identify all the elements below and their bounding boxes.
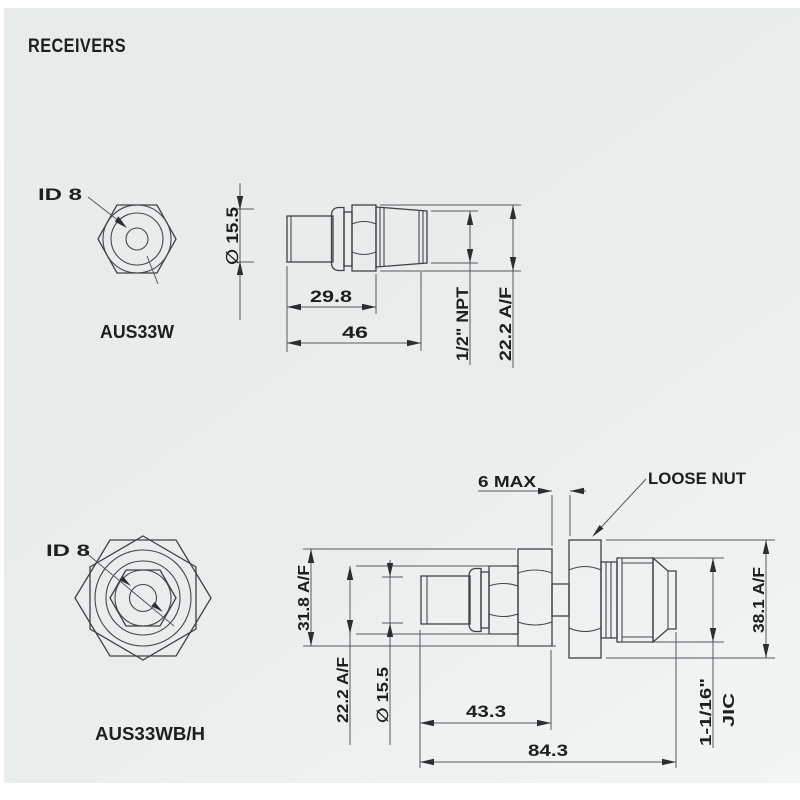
aus33w-dim-thread: 1/2" NPT	[431, 211, 478, 365]
collar-flange	[469, 569, 481, 632]
hex-body	[352, 205, 376, 271]
aus33wbh-end-view: ID 8	[46, 536, 211, 660]
aus33wbh-dim-overall-length: 84.3	[420, 632, 676, 768]
aus33w-part-label: AUS33W	[100, 322, 174, 342]
small-hex-body	[489, 566, 518, 634]
aus33w-dim-diameter: ∅ 15.5	[223, 183, 254, 320]
bulkhead-neck	[552, 584, 569, 616]
aus33w-dim-overall-length: 46	[287, 272, 421, 351]
aus33wbh-dim-diameter: ∅ 15.5	[375, 560, 403, 745]
aus33wbh-loose-nut-callout: LOOSE NUT	[592, 469, 747, 537]
dim-6max-label: 6 MAX	[478, 474, 536, 491]
outer-circle	[103, 205, 171, 273]
dim-thread-size-label: 1-1/16"	[698, 678, 715, 746]
dim-diameter-label: ∅ 15.5	[375, 667, 392, 723]
dim-diameter-label: ∅ 15.5	[223, 207, 242, 265]
receivers-technical-drawing: RECEIVERS ID 8	[0, 0, 800, 800]
aus33w-drawing: ID 8 ∅ 15.5	[38, 183, 521, 368]
middle-circle	[106, 561, 180, 635]
aus33wbh-part-label: AUS33WB/H	[95, 724, 205, 744]
dim-318-label: 31.8 A/F	[296, 565, 313, 631]
jic-nose-cone	[653, 558, 676, 642]
loose-nut-label: LOOSE NUT	[648, 469, 747, 488]
aus33w-end-view: ID 8	[38, 185, 176, 284]
hex-facet-top	[352, 222, 376, 225]
dim-46-label: 46	[342, 323, 368, 342]
spacer-ring	[481, 572, 489, 628]
technical-drawing-page: { "title": "RECEIVERS", "colors": { "bac…	[0, 0, 800, 800]
bore-label: ID 8	[46, 541, 90, 560]
aus33wbh-drawing: ID 8	[46, 469, 775, 768]
aus33wbh-dim-thread: 1-1/16" JIC	[620, 558, 738, 748]
page-title: RECEIVERS	[28, 36, 126, 57]
dim-843-label: 84.3	[528, 741, 568, 760]
body-hex	[518, 549, 552, 646]
dim-thread-type-label: JIC	[721, 692, 738, 727]
dim-381-label: 38.1 A/F	[751, 567, 768, 633]
bore-label: ID 8	[38, 185, 82, 204]
aus33w-side-view	[287, 205, 427, 271]
dim-npt-label: 1/2" NPT	[453, 286, 472, 361]
hex-outline	[98, 205, 176, 273]
receiver-cylinder	[421, 576, 470, 624]
dim-222-label: 22.2 A/F	[335, 657, 352, 723]
inner-hex-outline	[110, 570, 176, 626]
loose-nut-hex	[569, 540, 601, 658]
hex-facet-bottom	[352, 252, 376, 255]
aus33w-dim-hex: 22.2 A/F	[380, 205, 521, 368]
bore-circle	[126, 228, 148, 250]
dim-433-label: 43.3	[466, 702, 506, 721]
spacer-ring	[344, 212, 352, 266]
washer	[601, 562, 617, 638]
dim-hex-af-label: 22.2 A/F	[496, 287, 515, 361]
dim-29-8-label: 29.8	[310, 287, 352, 306]
aus33wbh-dim-panel-max: 6 MAX	[478, 474, 586, 546]
aus33wbh-dim-body-hex: 31.8 A/F	[296, 549, 556, 646]
receiver-cylinder	[287, 216, 333, 262]
